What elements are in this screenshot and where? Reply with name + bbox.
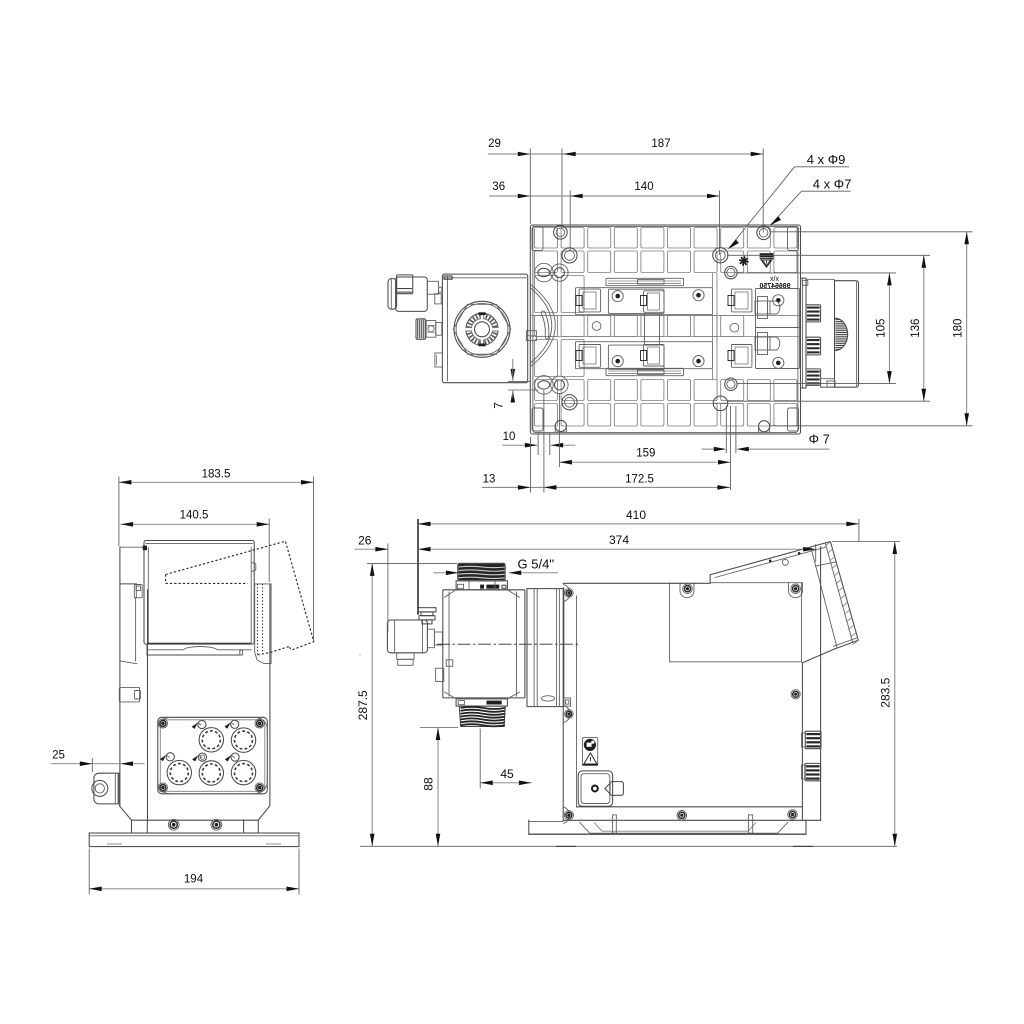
svg-text:194: 194	[184, 874, 204, 886]
svg-text:172.5: 172.5	[625, 474, 654, 486]
svg-text:183.5: 183.5	[202, 469, 231, 481]
svg-text:26: 26	[358, 534, 372, 548]
svg-text:Φ 7: Φ 7	[809, 432, 830, 447]
svg-text:159: 159	[636, 447, 655, 459]
svg-text:410: 410	[626, 508, 646, 522]
svg-text:187: 187	[651, 138, 670, 150]
svg-text:7: 7	[494, 402, 506, 408]
svg-text:10: 10	[503, 431, 516, 443]
svg-text:13: 13	[483, 474, 496, 486]
svg-text:136: 136	[910, 319, 922, 338]
svg-text:140: 140	[634, 181, 653, 193]
svg-text:283.5: 283.5	[879, 677, 893, 707]
svg-text:180: 180	[953, 319, 965, 338]
svg-text:287.5: 287.5	[356, 690, 370, 720]
svg-text:4 x Φ7: 4 x Φ7	[813, 177, 852, 192]
svg-text:29: 29	[488, 138, 501, 150]
svg-text:374: 374	[609, 533, 629, 547]
svg-text:98664750: 98664750	[759, 283, 790, 290]
svg-text:G 5/4'': G 5/4''	[518, 557, 555, 572]
svg-text:88: 88	[422, 777, 436, 791]
svg-text:105: 105	[876, 319, 888, 338]
svg-text:4 x Φ9: 4 x Φ9	[807, 152, 846, 167]
svg-text:25: 25	[52, 749, 65, 761]
svg-text:45: 45	[500, 767, 514, 781]
svg-text:140.5: 140.5	[180, 510, 209, 522]
svg-text:36: 36	[492, 181, 505, 193]
